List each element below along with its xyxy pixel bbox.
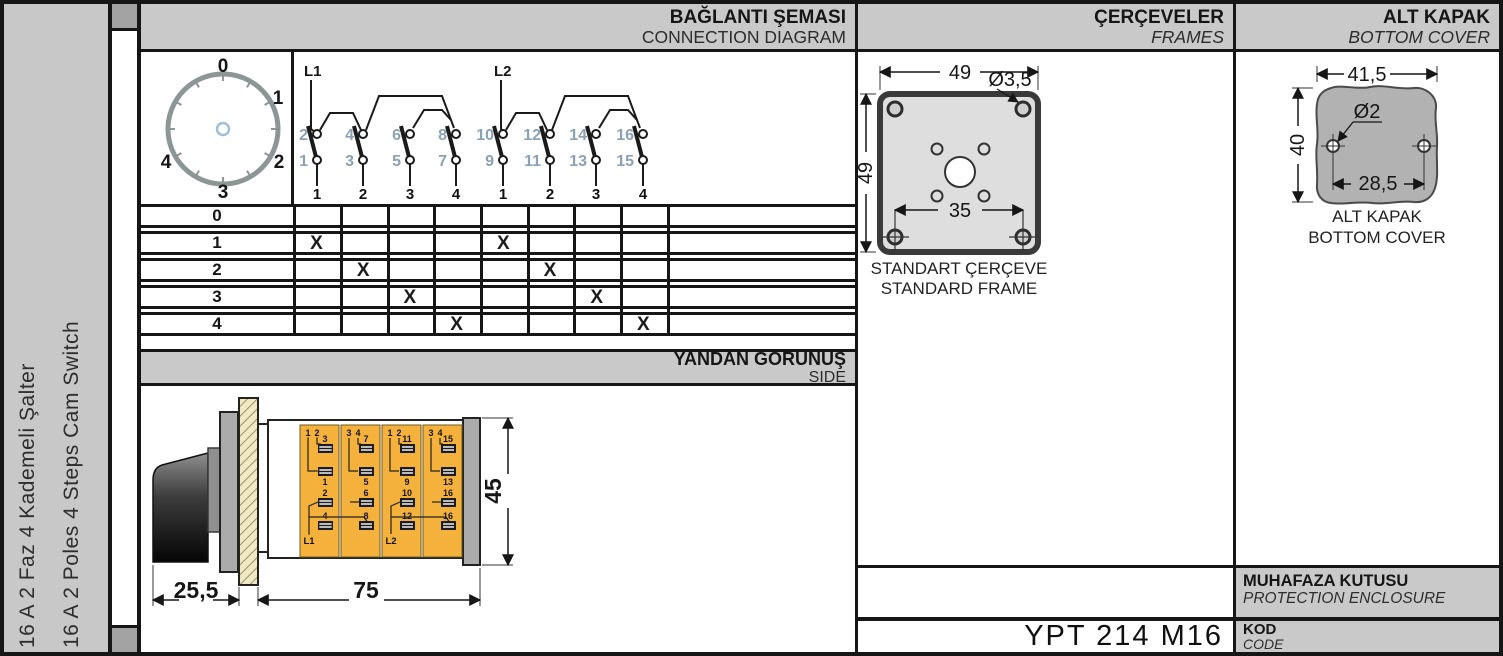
header-side-view-tr: YANDAN GÖRÜNÜŞ <box>674 350 846 369</box>
contact-group-2: 4 3 2 <box>345 126 367 203</box>
feed-wires <box>311 80 640 132</box>
group-number: 2 <box>546 186 554 203</box>
l2-label: L2 <box>494 63 512 80</box>
knob-collar <box>208 448 220 532</box>
svg-text:49: 49 <box>949 62 971 84</box>
svg-text:3: 3 <box>428 428 433 438</box>
header-bottom-cover-tr: ALT KAPAK <box>1383 7 1490 28</box>
enclosure-label-tr: MUHAFAZA KUTUSU <box>1243 572 1499 590</box>
cover-caption-en: BOTTOM COVER <box>1308 228 1446 247</box>
terminal-top: 10 <box>476 127 494 144</box>
svg-text:16: 16 <box>443 488 453 498</box>
header-connection-en: CONNECTION DIAGRAM <box>642 28 846 47</box>
header-frames: ÇERÇEVELER FRAMES <box>858 4 1233 52</box>
product-title-english: 16 A 2 Poles 4 Steps Cam Switch <box>60 321 84 648</box>
terminal-top: 12 <box>523 127 541 144</box>
svg-text:41,5: 41,5 <box>1348 64 1387 86</box>
svg-text:8: 8 <box>363 511 368 521</box>
table-row: 4 <box>141 312 855 336</box>
frame-drawing: 49 49 Ø3,5 35 STANDART ÇERÇEVE STANDARD … <box>858 52 1233 565</box>
dim-frame-height: 49 <box>855 94 877 252</box>
position-label: 0 <box>141 207 293 225</box>
code-label-en: CODE <box>1243 637 1499 651</box>
terminal-bottom: 15 <box>616 153 634 170</box>
svg-text:1: 1 <box>305 428 310 438</box>
svg-text:4: 4 <box>437 428 442 438</box>
svg-text:35: 35 <box>949 200 971 222</box>
contact-closed-mark: X <box>480 234 527 252</box>
code-label-cell: KOD CODE <box>1236 621 1499 652</box>
terminal-top: 16 <box>616 127 634 144</box>
svg-text:75: 75 <box>353 577 379 603</box>
header-side-view-en: SIDE <box>809 369 846 386</box>
table-row: 2 <box>141 258 855 282</box>
svg-text:11: 11 <box>402 434 412 444</box>
dim-cover-width: 41,5 <box>1317 64 1437 86</box>
table-gridline <box>480 204 483 336</box>
contact-closed-mark: X <box>620 315 667 333</box>
switching-table: 0 1 2 3 4 XXXXXXXX <box>141 204 855 337</box>
dial-pos-4: 4 <box>161 152 172 173</box>
small-hole <box>932 144 943 155</box>
header-bottom-cover-en: BOTTOM COVER <box>1348 28 1490 47</box>
binder-strip <box>112 4 137 652</box>
svg-text:12: 12 <box>402 511 412 521</box>
svg-text:3: 3 <box>322 434 327 444</box>
contact-schematic: L1 L2 2 1 1 4 3 2 6 5 3 <box>294 52 855 203</box>
svg-text:4: 4 <box>355 428 360 438</box>
feed-label: L2 <box>385 536 396 547</box>
mounting-hole <box>888 102 902 116</box>
dim-cover-height: 40 <box>1287 88 1309 202</box>
svg-text:Ø3,5: Ø3,5 <box>988 69 1031 91</box>
group-number: 1 <box>313 186 321 203</box>
product-title-sidebar: 16 A 2 Faz 4 Kademeli Şalter 16 A 2 Pole… <box>4 4 112 652</box>
header-frames-tr: ÇERÇEVELER <box>1094 7 1224 28</box>
panel-plate-hatched <box>239 398 258 585</box>
terminal-bottom: 5 <box>392 153 401 170</box>
terminal-top: 6 <box>392 127 401 144</box>
side-view-drawing: 1 2 3 1 2 4 L1 3 4 <box>141 386 855 652</box>
enclosure-label-en: PROTECTION ENCLOSURE <box>1243 590 1499 607</box>
contact-group-3: 6 5 3 <box>392 126 414 203</box>
contact-group-5: 10 9 1 <box>476 126 507 203</box>
dial-pos-2: 2 <box>274 152 285 173</box>
dial-pos-3: 3 <box>218 182 229 203</box>
table-gridline <box>293 204 296 336</box>
frame-caption-tr: STANDART ÇERÇEVE <box>871 259 1048 278</box>
contact-group-8: 16 15 4 <box>616 126 648 203</box>
l1-label: L1 <box>304 63 322 80</box>
header-connection-diagram: BAĞLANTI ŞEMASI CONNECTION DIAGRAM <box>141 4 855 52</box>
svg-text:25,5: 25,5 <box>174 577 219 603</box>
contact-closed-mark: X <box>386 288 433 306</box>
contact-closed-mark: X <box>573 288 620 306</box>
terminal-bottom: 11 <box>524 153 541 170</box>
terminal-bottom: 1 <box>299 153 308 170</box>
svg-text:45: 45 <box>480 478 506 504</box>
frame-caption-en: STANDARD FRAME <box>881 279 1037 298</box>
terminal-bottom: 7 <box>438 153 447 170</box>
header-connection-tr: BAĞLANTI ŞEMASI <box>670 7 846 28</box>
table-row: 3 <box>141 285 855 309</box>
terminal-top: 8 <box>438 127 447 144</box>
dial-pos-1: 1 <box>273 88 284 109</box>
shaft-bushing <box>258 424 268 552</box>
svg-text:15: 15 <box>443 434 453 444</box>
contact-group-4: 8 7 4 <box>438 126 461 203</box>
svg-text:28,5: 28,5 <box>1359 173 1398 195</box>
svg-text:Ø2: Ø2 <box>1354 101 1381 123</box>
product-code: YPT 214 M16 <box>858 621 1233 652</box>
mounting-hole <box>1016 102 1030 116</box>
svg-text:1: 1 <box>322 477 327 487</box>
group-number: 4 <box>639 186 648 203</box>
svg-text:40: 40 <box>1287 134 1309 156</box>
table-row: 0 <box>141 204 855 228</box>
contact-closed-mark: X <box>340 261 387 279</box>
cover-drawing: 41,5 40 Ø2 28,5 ALT KAPAK BOTTOM COVER <box>1236 52 1499 565</box>
svg-text:7: 7 <box>363 434 368 444</box>
svg-text:1: 1 <box>387 428 392 438</box>
svg-text:2: 2 <box>322 488 327 498</box>
contact-closed-mark: X <box>527 261 574 279</box>
end-cap <box>463 418 480 565</box>
svg-text:16: 16 <box>443 511 453 521</box>
svg-text:2: 2 <box>396 428 401 438</box>
front-plate <box>220 412 238 572</box>
group-number: 1 <box>499 186 507 203</box>
terminal-top: 4 <box>345 127 354 144</box>
binder-tab-top <box>112 4 137 31</box>
position-label: 2 <box>141 261 293 279</box>
terminal-bottom: 13 <box>569 153 587 170</box>
svg-text:13: 13 <box>443 477 453 487</box>
contact-group-1: 2 1 1 <box>299 126 321 203</box>
dial-shaft-icon <box>217 123 229 135</box>
group-number: 3 <box>406 186 414 203</box>
group-number: 3 <box>592 186 600 203</box>
terminal-bottom: 9 <box>485 153 494 170</box>
cover-caption-tr: ALT KAPAK <box>1332 207 1422 226</box>
group-number: 2 <box>359 186 367 203</box>
header-bottom-cover: ALT KAPAK BOTTOM COVER <box>1236 4 1499 52</box>
code-label-tr: KOD <box>1243 622 1499 637</box>
knob <box>153 453 208 562</box>
svg-text:2: 2 <box>314 428 319 438</box>
table-gridline <box>667 204 670 336</box>
shaft-hole <box>945 157 975 187</box>
dial-pos-0: 0 <box>218 56 229 77</box>
enclosure-cell: MUHAFAZA KUTUSU PROTECTION ENCLOSURE <box>1236 568 1499 617</box>
table-gridline <box>387 204 390 336</box>
svg-text:9: 9 <box>404 477 409 487</box>
svg-text:5: 5 <box>363 477 368 487</box>
feed-label: L1 <box>303 536 315 547</box>
terminal-top: 2 <box>299 127 308 144</box>
contact-group-7: 14 13 3 <box>569 126 600 203</box>
dim-knob-depth: 25,5 <box>153 577 239 603</box>
svg-text:3: 3 <box>346 428 351 438</box>
small-hole <box>979 191 990 202</box>
group-number: 4 <box>452 186 461 203</box>
contact-closed-mark: X <box>293 234 340 252</box>
terminal-top: 14 <box>569 127 587 144</box>
dim-body-length: 75 <box>258 577 480 603</box>
svg-text:6: 6 <box>363 488 368 498</box>
contact-group-6: 12 11 2 <box>523 126 554 203</box>
terminal-bottom: 3 <box>345 153 354 170</box>
svg-text:4: 4 <box>322 511 327 521</box>
catalog-page: 16 A 2 Faz 4 Kademeli Şalter 16 A 2 Pole… <box>0 0 1503 656</box>
small-hole <box>932 191 943 202</box>
dial-drawing: 0 1 2 3 4 <box>141 52 291 203</box>
svg-text:10: 10 <box>402 488 412 498</box>
header-side-view: YANDAN GÖRÜNÜŞ SIDE <box>141 349 855 386</box>
svg-text:49: 49 <box>855 162 877 184</box>
header-frames-en: FRAMES <box>1151 28 1224 47</box>
small-hole <box>979 144 990 155</box>
position-label: 3 <box>141 288 293 306</box>
dim-body-height: 45 <box>480 418 508 565</box>
position-label: 4 <box>141 315 293 333</box>
contact-closed-mark: X <box>433 315 480 333</box>
binder-tab-bottom <box>112 625 137 652</box>
position-label: 1 <box>141 234 293 252</box>
product-title-turkish: 16 A 2 Faz 4 Kademeli Şalter <box>16 363 40 648</box>
